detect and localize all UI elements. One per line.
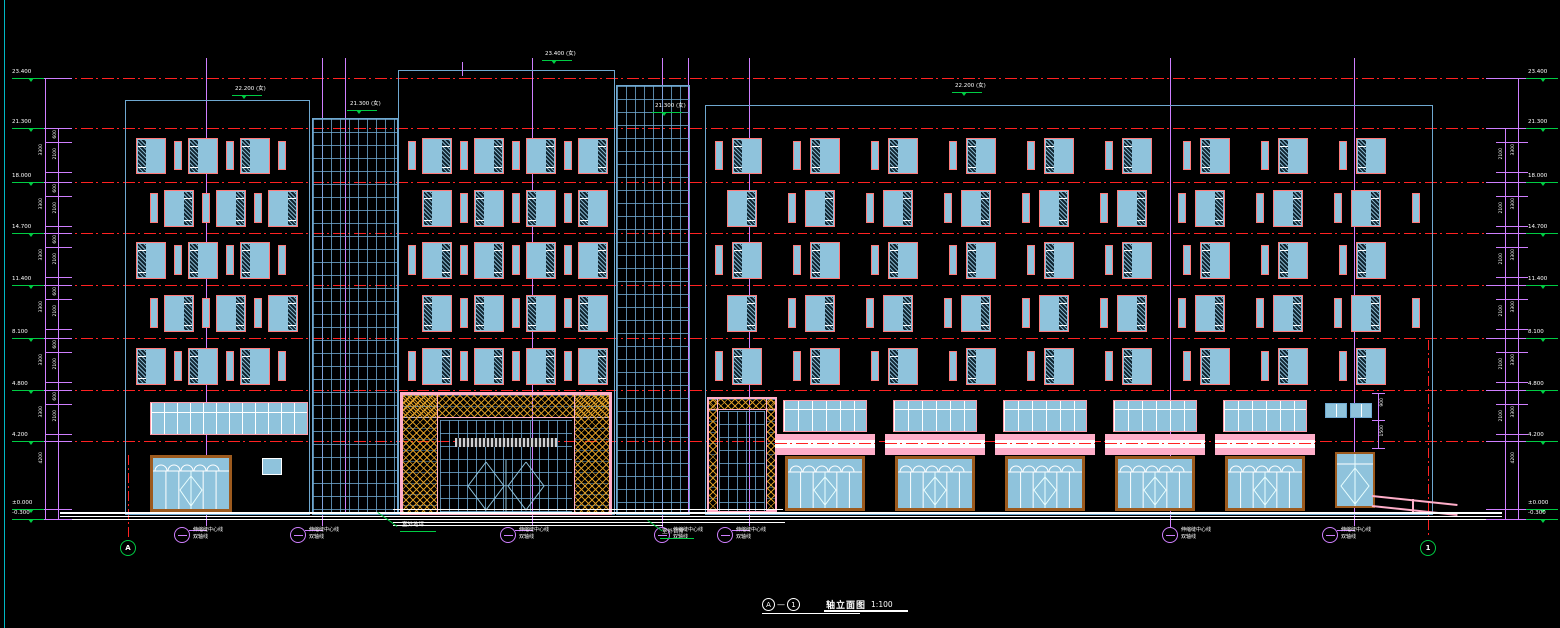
window-sash (1202, 140, 1210, 172)
window-wide (1273, 295, 1303, 332)
window-mullion (1046, 250, 1054, 251)
window-wide (474, 348, 504, 385)
window-mullion (825, 220, 833, 221)
dim-text: 600 (53, 392, 58, 401)
window-sash (825, 297, 833, 330)
window-mullion (236, 198, 244, 199)
window-narrow (408, 245, 416, 275)
window-narrow (715, 351, 723, 381)
dim-text: 3300 (1511, 301, 1516, 312)
window-sash (184, 297, 192, 330)
window-mullion (580, 325, 588, 326)
window-mullion (442, 146, 450, 147)
window-mullion (747, 220, 755, 221)
window-mullion (288, 303, 296, 304)
band-window (1003, 400, 1087, 432)
window-sash (968, 350, 976, 383)
window-wide (474, 242, 504, 279)
window-wide (526, 242, 556, 279)
bubble-divider (504, 535, 513, 536)
window-narrow (460, 351, 468, 381)
elevation-value: 4.200 (12, 433, 28, 439)
window-mullion (981, 198, 989, 199)
elevation-value: 4.800 (12, 382, 28, 388)
window-mullion (442, 167, 450, 168)
window-sash (424, 192, 432, 225)
window-sash (1124, 244, 1132, 277)
window-sash (981, 297, 989, 330)
window-sash (494, 244, 502, 277)
dim-text: 4200 (39, 452, 44, 463)
window-narrow (512, 141, 520, 170)
window-narrow (1183, 141, 1191, 170)
window-narrow (715, 141, 723, 170)
dim-text: 1500 (1380, 425, 1385, 436)
dim-subtick (1496, 226, 1528, 227)
window-wide (1200, 242, 1230, 279)
window-mullion (190, 146, 198, 147)
parapet-tick (462, 62, 463, 76)
window-narrow (944, 298, 952, 328)
window-mullion (1293, 303, 1301, 304)
window-mullion (734, 167, 742, 168)
window-wide (164, 190, 194, 227)
elevation-value: -0.300 (12, 511, 30, 517)
window-wide (1195, 295, 1225, 332)
window-mullion (1371, 303, 1379, 304)
window-wide (164, 295, 194, 332)
window-mullion (1215, 325, 1223, 326)
small-window (1350, 403, 1372, 418)
window-narrow (1178, 193, 1186, 223)
window-narrow (150, 298, 158, 328)
window-narrow (202, 298, 210, 328)
window-sash (598, 350, 606, 383)
dim-subtick (1496, 299, 1528, 300)
ground-note-underline (660, 538, 694, 539)
window-mullion (476, 198, 484, 199)
window-sash (598, 140, 606, 172)
band-window (783, 400, 867, 432)
window-mullion (184, 303, 192, 304)
window-mullion (1280, 378, 1288, 379)
window-narrow (871, 245, 879, 275)
axis-annotation-line2: 双轴线 (309, 535, 324, 540)
window-mullion (903, 303, 911, 304)
dim-text: 600 (53, 184, 58, 193)
dim-text: 3300 (39, 144, 44, 155)
window-wide (240, 242, 270, 279)
bubble-divider (1326, 535, 1335, 536)
dim-text: 600 (53, 235, 58, 244)
window-sash (138, 140, 146, 172)
window-narrow (1027, 351, 1035, 381)
dim-text: 2100 (1499, 253, 1504, 264)
window-sash (1046, 140, 1054, 172)
window-mullion (190, 356, 198, 357)
window-mullion (242, 378, 250, 379)
axis-bubble-a: A (120, 540, 136, 556)
ground-line (60, 519, 1502, 520)
canopy-level-line (1215, 443, 1315, 444)
window-mullion (528, 220, 536, 221)
canopy-fascia (1105, 440, 1205, 448)
window-narrow (512, 193, 520, 223)
dim-text: 3300 (39, 301, 44, 312)
window-mullion (598, 272, 606, 273)
window-sash (1280, 140, 1288, 172)
window-mullion (236, 220, 244, 221)
window-wide (136, 138, 166, 174)
window-mullion (242, 146, 250, 147)
dim-text: 2100 (1499, 148, 1504, 159)
window-narrow (1261, 141, 1269, 170)
window-sash (734, 244, 742, 277)
window-narrow (1334, 193, 1342, 223)
window-narrow (1100, 193, 1108, 223)
dim-text: 3300 (39, 249, 44, 260)
parapet-elevation-tag: 23.400 (女) (545, 52, 576, 58)
window-mullion (190, 167, 198, 168)
window-sash (598, 244, 606, 277)
window-narrow (150, 193, 158, 223)
window-mullion (138, 167, 146, 168)
window-wide (188, 138, 218, 174)
window-sash (494, 140, 502, 172)
window-mullion (424, 220, 432, 221)
entrance-doors (466, 460, 546, 512)
window-mullion (1202, 146, 1210, 147)
parapet-tag-underline (652, 112, 682, 113)
window-narrow (871, 351, 879, 381)
elevation-marker-triangle (1540, 285, 1546, 289)
small-window (1325, 403, 1347, 418)
dim-text: 2100 (53, 305, 58, 316)
window-narrow (174, 351, 182, 381)
window-wide (216, 190, 246, 227)
dim-subtick (46, 247, 72, 248)
window-mullion (138, 250, 146, 251)
window-wide (1117, 295, 1147, 332)
window-narrow (1027, 245, 1035, 275)
window-narrow (949, 245, 957, 275)
window-mullion (494, 272, 502, 273)
window-narrow (1183, 351, 1191, 381)
ground-line (393, 509, 783, 510)
window-wide (188, 242, 218, 279)
window-narrow (1105, 245, 1113, 275)
storefront-glazing (1118, 459, 1192, 508)
dim-tick (1486, 182, 1528, 183)
elevation-value: 11.400 (12, 277, 31, 283)
bubble-divider (294, 535, 303, 536)
window-wide (727, 190, 757, 227)
band-window (1113, 400, 1197, 432)
dim-text: 2100 (53, 358, 58, 369)
dim-text: 3300 (1511, 406, 1516, 417)
window-mullion (546, 250, 554, 251)
canopy-fascia (775, 440, 875, 448)
window-narrow (226, 245, 234, 275)
window-narrow (512, 298, 520, 328)
ground-line (60, 512, 1502, 514)
window-sash (1358, 140, 1366, 172)
window-mullion (184, 325, 192, 326)
parapet-elevation-tag: 22.200 (女) (955, 84, 986, 90)
dim-subtick (1496, 434, 1528, 435)
window-narrow (226, 351, 234, 381)
window-narrow (1105, 141, 1113, 170)
dim-subtick (1496, 404, 1528, 405)
window-narrow (1261, 245, 1269, 275)
window-mullion (598, 167, 606, 168)
elevation-marker-triangle (28, 128, 34, 132)
window-sash (242, 140, 250, 172)
ground-line (60, 516, 1502, 517)
parapet-tag-triangle (551, 60, 557, 64)
window-wide (1044, 138, 1074, 174)
dim-text: 2100 (1499, 358, 1504, 369)
title-scale: 1:100 (871, 600, 893, 609)
window-sash (981, 192, 989, 225)
window-mullion (598, 378, 606, 379)
window-wide (526, 295, 556, 332)
elevation-value: ±0.000 (1528, 501, 1548, 507)
window-narrow (564, 245, 572, 275)
window-mullion (494, 167, 502, 168)
window-mullion (968, 356, 976, 357)
window-sash (1046, 350, 1054, 383)
window-mullion (476, 325, 484, 326)
window-mullion (1358, 378, 1366, 379)
window-mullion (1371, 198, 1379, 199)
floor-level-line (60, 78, 1505, 79)
window-sash (1137, 297, 1145, 330)
parapet-tag-triangle (356, 110, 362, 114)
window-mullion (1280, 146, 1288, 147)
elevation-marker-triangle (28, 519, 34, 523)
dim-subtick (46, 299, 72, 300)
elevation-marker-triangle (28, 441, 34, 445)
window-sash (1202, 244, 1210, 277)
window-narrow (1339, 141, 1347, 170)
canopy-level-line (885, 443, 985, 444)
elevation-value: 18.000 (12, 174, 31, 180)
window-mullion (442, 250, 450, 251)
axis-annotation-line1: 伸缩缝中心线 (1181, 528, 1211, 533)
window-sash (1215, 192, 1223, 225)
ground-line (393, 522, 785, 523)
window-mullion (546, 272, 554, 273)
parapet-elevation-tag: 22.200 (女) (235, 87, 266, 93)
band-window (1223, 400, 1307, 432)
window-narrow (949, 141, 957, 170)
ground-line (393, 525, 663, 526)
window-mullion (1371, 325, 1379, 326)
window-mullion (968, 167, 976, 168)
parapet-tag-underline (952, 92, 982, 93)
window-mullion (890, 250, 898, 251)
dim-text: 2100 (53, 253, 58, 264)
window-sash (890, 244, 898, 277)
window-wide (1200, 348, 1230, 385)
window-mullion (1059, 220, 1067, 221)
window-wide (1200, 138, 1230, 174)
window-narrow (1261, 351, 1269, 381)
window-mullion (812, 272, 820, 273)
elevation-marker-triangle (1540, 441, 1546, 445)
axis-annotation-line1: 伸缩缝中心线 (736, 528, 766, 533)
entrance-sign-band (455, 438, 557, 447)
window-wide (474, 295, 504, 332)
dim-text: 2100 (1499, 410, 1504, 421)
window-wide (961, 295, 991, 332)
window-sash (476, 297, 484, 330)
dim-tick (1486, 233, 1528, 234)
title-axis-start-bubble: A (762, 598, 775, 611)
dim-text: 3300 (1511, 249, 1516, 260)
window-sash (1293, 297, 1301, 330)
window-mullion (476, 220, 484, 221)
window-wide (888, 138, 918, 174)
window-narrow (226, 141, 234, 170)
window-narrow (254, 193, 262, 223)
expansion-joint-axis-bubble (500, 527, 516, 543)
window-narrow (1412, 298, 1420, 328)
expansion-joint-axis-bubble (174, 527, 190, 543)
window-mullion (1215, 303, 1223, 304)
elevation-marker-triangle (1540, 338, 1546, 342)
ground-note: 室外地坪 (402, 523, 424, 529)
dim-text: 3300 (39, 406, 44, 417)
elevation-marker-triangle (28, 233, 34, 237)
window-narrow (1256, 298, 1264, 328)
window-mullion (1371, 220, 1379, 221)
window-sash (734, 350, 742, 383)
axis-annotation-line2: 双轴线 (1341, 535, 1356, 540)
window-mullion (242, 356, 250, 357)
window-mullion (494, 250, 502, 251)
elevation-value: 14.700 (1528, 225, 1547, 231)
window-mullion (1358, 272, 1366, 273)
window-sash (812, 244, 820, 277)
dim-subtick (1496, 277, 1528, 278)
elevation-value: 21.300 (12, 120, 31, 126)
window-wide (578, 295, 608, 332)
window-narrow (1022, 298, 1030, 328)
window-mullion (598, 146, 606, 147)
window-mullion (184, 198, 192, 199)
window-mullion (1046, 146, 1054, 147)
window-mullion (236, 303, 244, 304)
dim-text: 4200 (1511, 452, 1516, 463)
canopy-fascia (1215, 440, 1315, 448)
window-mullion (968, 146, 976, 147)
window-wide (1122, 242, 1152, 279)
window-sash (747, 192, 755, 225)
dim-text: 3300 (1511, 354, 1516, 365)
window-mullion (890, 378, 898, 379)
parapet-tag-triangle (961, 92, 967, 96)
window-narrow (460, 141, 468, 170)
dim-text: 600 (53, 130, 58, 139)
window-mullion (190, 250, 198, 251)
window-sash (1280, 350, 1288, 383)
window-sash (138, 244, 146, 277)
dim-text: 2100 (53, 202, 58, 213)
elevation-marker-triangle (28, 78, 34, 82)
window-mullion (890, 167, 898, 168)
window-mullion (890, 146, 898, 147)
window-mullion (1124, 167, 1132, 168)
window-wide (526, 348, 556, 385)
window-mullion (1059, 198, 1067, 199)
window-wide (1039, 190, 1069, 227)
axis-annotation-line1: 伸缩缝中心线 (1341, 528, 1371, 533)
window-mullion (1293, 325, 1301, 326)
window-mullion (1046, 356, 1054, 357)
window-wide (961, 190, 991, 227)
window-wide (1044, 348, 1074, 385)
window-narrow (512, 351, 520, 381)
window-wide (578, 190, 608, 227)
window-mullion (1215, 198, 1223, 199)
axis-annotation-line2: 双轴线 (736, 535, 751, 540)
window-wide (966, 242, 996, 279)
window-mullion (1202, 356, 1210, 357)
window-sash (288, 192, 296, 225)
dim-subtick (1496, 172, 1528, 173)
window-wide (888, 348, 918, 385)
expansion-joint-axis-bubble (717, 527, 733, 543)
dim-text: 2100 (53, 148, 58, 159)
window-sash (747, 297, 755, 330)
window-mullion (598, 356, 606, 357)
window-mullion (546, 378, 554, 379)
window-mullion (1124, 250, 1132, 251)
parapet-tag-underline (347, 110, 377, 111)
window-mullion (968, 272, 976, 273)
axis-annotation-line1: 伸缩缝中心线 (193, 528, 223, 533)
dim-chain-line (1505, 128, 1506, 520)
window-mullion (190, 272, 198, 273)
window-narrow (564, 298, 572, 328)
window-mullion (184, 220, 192, 221)
window-sash (546, 140, 554, 172)
canopy-level-line (995, 443, 1095, 444)
window-mullion (190, 378, 198, 379)
window-narrow (174, 141, 182, 170)
dim-text: 2100 (53, 410, 58, 421)
window-mullion (1280, 272, 1288, 273)
window-mullion (734, 250, 742, 251)
window-sash (236, 297, 244, 330)
parapet-tag-triangle (661, 112, 667, 116)
elevation-marker-triangle (1540, 128, 1546, 132)
elevation-value: 23.400 (1528, 70, 1547, 76)
window-wide (727, 295, 757, 332)
window-sash (1059, 192, 1067, 225)
window-mullion (424, 325, 432, 326)
window-mullion (476, 303, 484, 304)
expansion-joint-axis-bubble (1322, 527, 1338, 543)
window-sash (1046, 244, 1054, 277)
window-mullion (442, 272, 450, 273)
window-mullion (1124, 356, 1132, 357)
dim-tick (1486, 78, 1528, 79)
elevation-value: 14.700 (12, 225, 31, 231)
window-wide (474, 190, 504, 227)
